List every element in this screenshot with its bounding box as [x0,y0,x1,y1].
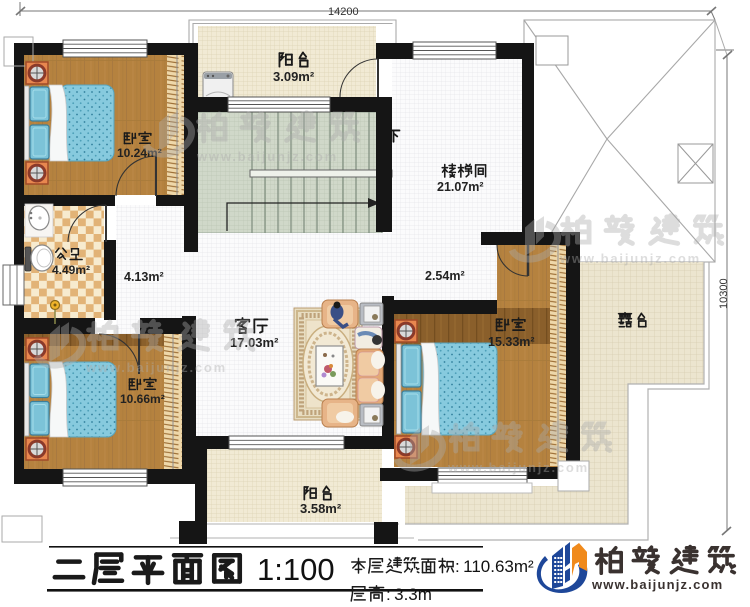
svg-text:www.baijunjz.com: www.baijunjz.com [447,460,589,475]
svg-text:4.13m²: 4.13m² [124,270,164,284]
svg-text:4.49m²: 4.49m² [52,263,90,277]
svg-text:www.baijunjz.com: www.baijunjz.com [85,360,227,375]
svg-text:10.66m²: 10.66m² [120,392,165,406]
svg-text:3.58m²: 3.58m² [300,501,342,516]
svg-text:1:100: 1:100 [257,552,335,587]
svg-text:14200: 14200 [328,6,359,18]
svg-text:15.33m²: 15.33m² [488,335,535,349]
svg-text:www.baijunjz.com: www.baijunjz.com [559,251,701,266]
svg-text:: 3.3m: : 3.3m [386,585,432,604]
svg-text:10300: 10300 [718,278,730,309]
svg-text:2.54m²: 2.54m² [425,269,465,283]
svg-text:3.09m²: 3.09m² [273,69,315,84]
svg-text:: 110.63m²: : 110.63m² [455,557,534,576]
svg-text:21.07m²: 21.07m² [437,180,484,194]
svg-text:www.baijunjz.com: www.baijunjz.com [591,577,723,592]
svg-text:www.baijunjz.com: www.baijunjz.com [196,149,338,164]
